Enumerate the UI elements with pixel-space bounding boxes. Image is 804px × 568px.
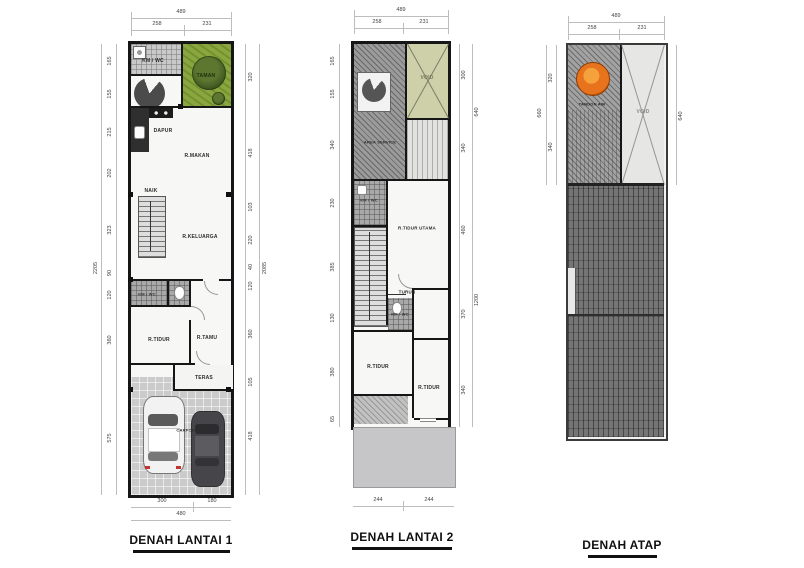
dim-label: 380 bbox=[330, 367, 336, 376]
dim-label: 130 bbox=[330, 313, 336, 322]
roof-notch bbox=[568, 268, 576, 314]
taillight bbox=[176, 466, 181, 469]
dim-ext bbox=[193, 502, 194, 512]
dim-label: 640 bbox=[474, 107, 480, 116]
dim-label: 320 bbox=[248, 72, 254, 81]
dim-line bbox=[116, 44, 117, 495]
dim-ext bbox=[448, 10, 449, 34]
floorplan-sheet: { "colors": { "wall_black": "#161616", "… bbox=[0, 0, 804, 568]
room-label-dapur: DAPUR bbox=[154, 128, 173, 134]
sink-icon bbox=[357, 185, 367, 195]
dim-label: 640 bbox=[678, 111, 684, 120]
dim-label: 220 bbox=[248, 235, 254, 244]
dim-line bbox=[546, 45, 547, 185]
dim-line bbox=[676, 45, 677, 185]
dim-ext bbox=[619, 29, 620, 40]
plan1-title-underline bbox=[133, 550, 230, 553]
dim-label: 155 bbox=[330, 89, 336, 98]
dim-label: 215 bbox=[107, 127, 113, 136]
spiral-stair-icon bbox=[362, 78, 386, 102]
dim-line bbox=[259, 44, 260, 495]
dim-ext bbox=[131, 12, 132, 36]
room-label-area-service: AREA SERVICE bbox=[364, 140, 396, 145]
dim-label: 244 bbox=[424, 497, 433, 503]
room-label-rtamu: R.TAMU bbox=[197, 335, 217, 341]
white-car-roof bbox=[148, 428, 180, 452]
water-tank-icon bbox=[576, 62, 610, 96]
dim-line bbox=[131, 507, 231, 508]
wall bbox=[181, 44, 183, 106]
dim-label: 480 bbox=[176, 511, 185, 517]
dim-label: 320 bbox=[548, 73, 554, 82]
room-label-void: VOID bbox=[420, 75, 433, 81]
dim-ext bbox=[354, 10, 355, 34]
room-label-rkeluarga: R.KELUARGA bbox=[182, 234, 217, 240]
dim-label: 165 bbox=[330, 56, 336, 65]
wall bbox=[354, 330, 414, 332]
dim-ext bbox=[568, 16, 569, 40]
dim-ext bbox=[231, 12, 232, 36]
taillight bbox=[145, 466, 150, 469]
dim-line bbox=[354, 28, 448, 29]
room-label-rtidur: R.TIDUR bbox=[148, 337, 170, 343]
dim-label: 300 bbox=[461, 70, 467, 79]
dim-line bbox=[568, 22, 664, 23]
dim-label: 120 bbox=[107, 290, 113, 299]
dim-label: 360 bbox=[248, 329, 254, 338]
dim-label: 90 bbox=[107, 270, 113, 276]
carport-roof-apron bbox=[353, 427, 456, 488]
dim-line bbox=[245, 44, 246, 495]
dim-label: 105 bbox=[248, 377, 254, 386]
room-label-rtidur-b: R.TIDUR bbox=[418, 385, 440, 391]
dim-label: 244 bbox=[373, 497, 382, 503]
dim-label: 103 bbox=[248, 202, 254, 211]
room-label-kmwc-2f: KM / WC bbox=[360, 198, 378, 203]
dim-label: 231 bbox=[202, 21, 211, 27]
dim-label: 300 bbox=[157, 498, 166, 504]
plan3-title: DENAH ATAP bbox=[582, 538, 661, 552]
dim-line bbox=[556, 45, 557, 185]
dim-label: 340 bbox=[330, 140, 336, 149]
front-roof-strip bbox=[354, 396, 408, 424]
dim-label: 418 bbox=[248, 148, 254, 157]
stairs-up bbox=[138, 196, 166, 258]
room-label-teras: TERAS bbox=[195, 375, 213, 381]
plan2-title-underline bbox=[352, 547, 452, 550]
dim-label: 418 bbox=[248, 431, 254, 440]
white-car-windshield bbox=[148, 414, 178, 426]
stair-centerline bbox=[369, 232, 370, 320]
dim-ext bbox=[403, 23, 404, 34]
column bbox=[128, 192, 133, 197]
dark-car-windshield bbox=[195, 424, 219, 434]
wall bbox=[412, 338, 414, 418]
dim-line bbox=[459, 44, 460, 427]
roof-void-panel bbox=[622, 45, 664, 185]
column bbox=[128, 387, 133, 392]
dim-ext bbox=[184, 25, 185, 36]
plant-icon bbox=[212, 92, 225, 105]
wall bbox=[189, 281, 191, 306]
main-roof bbox=[568, 186, 664, 437]
room-label-kmwc-2f-2: KM / WC bbox=[391, 312, 409, 317]
spiral-stair-icon bbox=[134, 78, 165, 109]
dim-label: 258 bbox=[587, 25, 596, 31]
dim-line bbox=[568, 34, 664, 35]
column bbox=[226, 192, 231, 197]
stairs-down bbox=[354, 227, 388, 327]
wall bbox=[386, 181, 388, 225]
wall bbox=[219, 279, 231, 281]
void-area bbox=[407, 44, 448, 118]
dim-line bbox=[354, 16, 448, 17]
dim-label: 65 bbox=[330, 416, 336, 422]
toilet-icon bbox=[174, 286, 185, 300]
dim-label: 230 bbox=[330, 198, 336, 207]
plan2-title: DENAH LANTAI 2 bbox=[350, 530, 453, 544]
dim-line bbox=[131, 18, 231, 19]
wall bbox=[189, 320, 191, 365]
dim-label: 155 bbox=[107, 89, 113, 98]
dim-label: 340 bbox=[461, 143, 467, 152]
window bbox=[420, 418, 436, 422]
dim-label: 2085 bbox=[262, 262, 268, 274]
label-tandon-air: TANDON AIR bbox=[579, 102, 606, 107]
dim-label: 120 bbox=[248, 281, 254, 290]
label-void-roof: VOID bbox=[636, 109, 649, 115]
white-car-rear-window bbox=[148, 452, 178, 461]
lower-roof-strip bbox=[407, 120, 448, 179]
dim-label: 231 bbox=[637, 25, 646, 31]
plan1-title: DENAH LANTAI 1 bbox=[129, 533, 232, 547]
dim-ext bbox=[664, 16, 665, 40]
dim-line bbox=[131, 30, 231, 31]
room-label-rmakan: R.MAKAN bbox=[184, 153, 209, 159]
dim-ext bbox=[403, 501, 404, 511]
room-label-naik: NAIK bbox=[144, 188, 157, 194]
roof-ridge-line bbox=[568, 314, 664, 316]
dim-label: 340 bbox=[548, 142, 554, 151]
stair-centerline bbox=[150, 201, 151, 251]
dim-label: 1200 bbox=[474, 294, 480, 306]
room-label-kmwc-top: KM / WC bbox=[142, 58, 164, 64]
dim-label: 165 bbox=[107, 56, 113, 65]
sink-icon bbox=[134, 126, 145, 139]
dim-label: 660 bbox=[537, 108, 543, 117]
dim-label: 202 bbox=[107, 168, 113, 177]
dim-label: 489 bbox=[396, 7, 405, 13]
room-label-turun: TURUN bbox=[399, 290, 416, 295]
wall bbox=[414, 338, 448, 340]
room-label-taman: TAMAN bbox=[197, 73, 216, 79]
dim-line bbox=[101, 44, 102, 495]
dim-line bbox=[339, 44, 340, 427]
wall bbox=[131, 305, 191, 307]
room-label-rtidur-a: R.TIDUR bbox=[367, 364, 389, 370]
column bbox=[178, 104, 183, 109]
dim-label: 575 bbox=[107, 433, 113, 442]
dim-line bbox=[131, 520, 231, 521]
room-label-rtidur-utama: R.TIDUR UTAMA bbox=[398, 226, 436, 231]
wall bbox=[131, 74, 181, 76]
dim-label: 180 bbox=[207, 498, 216, 504]
dim-label: 489 bbox=[611, 13, 620, 19]
dim-label: 360 bbox=[107, 335, 113, 344]
plan3-title-underline bbox=[588, 555, 657, 558]
dim-line bbox=[472, 44, 473, 427]
dim-label: 489 bbox=[176, 9, 185, 15]
dim-label: 385 bbox=[330, 262, 336, 271]
stove-icon bbox=[149, 108, 173, 118]
wall bbox=[412, 288, 448, 290]
room-label-carport: CARPORT bbox=[176, 428, 197, 433]
dim-label: 2205 bbox=[93, 262, 99, 274]
dim-label: 258 bbox=[372, 19, 381, 25]
dim-label: 460 bbox=[461, 225, 467, 234]
column bbox=[128, 277, 133, 282]
dim-label: 40 bbox=[248, 264, 254, 270]
dim-label: 340 bbox=[461, 385, 467, 394]
dark-car-roof bbox=[195, 436, 219, 456]
dim-label: 258 bbox=[152, 21, 161, 27]
dark-car-rear-window bbox=[195, 458, 219, 466]
room-label-kmwc-mid: KM / WC bbox=[138, 292, 156, 297]
dim-label: 370 bbox=[461, 309, 467, 318]
dim-label: 231 bbox=[419, 19, 428, 25]
roof-stripe-overlay bbox=[568, 110, 622, 185]
dim-label: 323 bbox=[107, 225, 113, 234]
column bbox=[226, 387, 231, 392]
